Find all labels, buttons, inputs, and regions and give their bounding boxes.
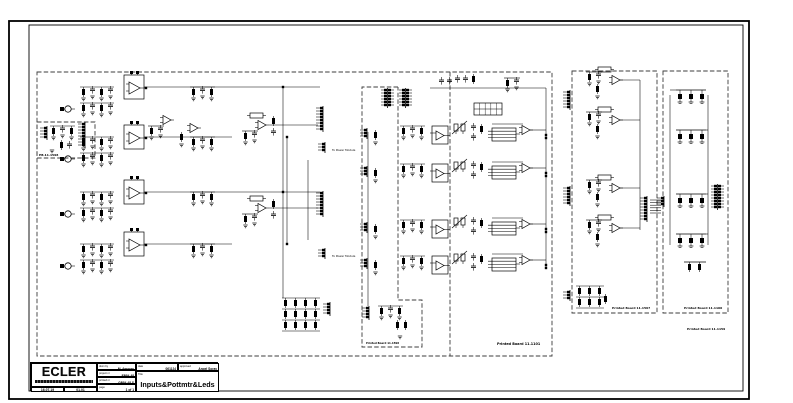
circuit-part (320, 119, 323, 121)
circuit-part (364, 223, 367, 225)
circuit-part (700, 134, 704, 139)
circuit-part (60, 157, 64, 161)
circuit-part (327, 309, 330, 311)
circuit-part (320, 107, 323, 109)
circuit-part (65, 106, 71, 112)
circuit-part (364, 167, 367, 169)
circuit-part (506, 80, 509, 86)
schematic-sheet: PB.11.1598 Printed Board 11.1101 Printed… (0, 0, 793, 403)
circuit-part (644, 197, 647, 199)
circuit-part (320, 195, 323, 197)
circuit-part (545, 228, 547, 230)
circuit-part (472, 76, 475, 82)
circuit-part (461, 218, 465, 225)
circuit-part (130, 71, 133, 74)
circuit-part (82, 132, 85, 134)
circuit-part (567, 291, 570, 293)
circuit-part (327, 303, 330, 305)
circuit-part (402, 101, 405, 103)
title-cell: Title Inputs&Pottmtr&Leds (136, 371, 219, 392)
circuit-part (689, 134, 693, 139)
circuit-part (100, 105, 103, 111)
circuit-part (596, 234, 599, 240)
circuit-part (304, 311, 307, 317)
circuit-part (406, 95, 409, 97)
circuit-part (320, 204, 323, 206)
circuit-part (384, 101, 387, 103)
circuit-part (718, 194, 721, 196)
circuit-part (364, 173, 367, 175)
circuit-part (545, 267, 547, 269)
circuit-part (190, 124, 198, 133)
sheet-title: Inputs&Pottmtr&Leds (137, 380, 218, 389)
circuit-part (644, 215, 647, 217)
circuit-part (322, 146, 325, 148)
circuit-part (327, 306, 330, 308)
circuit-part (304, 300, 307, 306)
circuit-part (124, 180, 144, 204)
circuit-part (661, 203, 664, 205)
circuit-part (44, 130, 47, 132)
circuit-part (612, 184, 620, 193)
board-label-main: Printed Board 11.1101 (497, 342, 541, 346)
circuit-part (320, 128, 323, 130)
circuit-part (596, 126, 599, 132)
circuit-part (192, 246, 195, 252)
circuit-part (284, 322, 287, 328)
circuit-part (644, 203, 647, 205)
circuit-part (454, 254, 458, 261)
circuit-part (432, 164, 448, 182)
circuit-part (545, 231, 547, 233)
circuit-part (678, 198, 682, 203)
circuit-part (406, 89, 409, 91)
circuit-part (282, 191, 284, 193)
circuit-part (388, 104, 391, 106)
circuit-part (461, 124, 465, 131)
circuit-part (320, 113, 323, 115)
circuit-part (454, 162, 458, 169)
printed-cell: printed nr GP84-48 S (97, 377, 136, 384)
circuit-part (364, 132, 367, 134)
circuit-part (522, 256, 530, 265)
circuit-part (644, 218, 647, 220)
circuit-part (180, 134, 183, 140)
circuit-part (320, 201, 323, 203)
circuit-part (314, 300, 317, 306)
circuit-part (596, 194, 599, 200)
circuit-part (82, 144, 85, 146)
circuit-part (567, 187, 570, 189)
circuit-part (436, 261, 444, 270)
circuit-part (402, 98, 405, 100)
circuit-part (718, 191, 721, 193)
circuit-part (567, 202, 570, 204)
circuit-part (598, 107, 611, 112)
circuit-part (714, 194, 717, 196)
circuit-part (44, 136, 47, 138)
circuit-part (82, 210, 85, 216)
circuit-part (567, 106, 570, 108)
circuit-part (145, 137, 147, 139)
circuit-part (124, 125, 144, 149)
wire-label-to-power-1: To Power Module (331, 148, 356, 152)
circuit-part (388, 92, 391, 94)
circuit-part (129, 82, 140, 94)
circuit-part (612, 224, 620, 233)
circuit-part (420, 258, 423, 264)
circuit-part (130, 228, 133, 231)
circuit-part (406, 104, 409, 106)
circuit-part (461, 162, 465, 169)
circuit-part (100, 262, 103, 268)
title-block: ECLER 16.07.19 01.01 drwn by M. Amores p… (30, 362, 218, 391)
circuit-part (714, 188, 717, 190)
circuit-part (644, 200, 647, 202)
circuit-part (364, 226, 367, 228)
circuit-part (210, 139, 213, 145)
circuit-part (661, 197, 664, 199)
circuit-part (60, 107, 64, 111)
circuit-part (567, 94, 570, 96)
circuit-part (100, 89, 103, 95)
circuit-part (272, 118, 275, 124)
circuit-part (567, 103, 570, 105)
circuit-part (82, 105, 85, 111)
circuit-part (567, 97, 570, 99)
circuit-part (522, 220, 530, 229)
circuit-part (644, 206, 647, 208)
circuit-part (364, 170, 367, 172)
circuit-part (82, 138, 85, 140)
rev-date-1-cell: 16.07.19 (31, 387, 64, 392)
circuit-part (364, 262, 367, 264)
circuit-part (364, 129, 367, 131)
circuit-part (604, 296, 607, 302)
circuit-part (432, 126, 448, 144)
circuit-part (402, 258, 405, 264)
circuit-part (82, 262, 85, 268)
circuit-part (320, 110, 323, 112)
circuit-part (145, 192, 147, 194)
circuit-part (364, 259, 367, 261)
circuit-part (718, 185, 721, 187)
circuit-part (44, 133, 47, 135)
circuit-part (700, 94, 704, 99)
circuit-part (718, 206, 721, 208)
circuit-part (136, 71, 139, 74)
circuit-part (612, 76, 620, 85)
ecler-logo: ECLER (32, 366, 96, 380)
circuit-part (60, 212, 64, 216)
circuit-part (210, 246, 213, 252)
circuit-part (82, 129, 85, 131)
circuit-part (320, 116, 323, 118)
circuit-part (718, 197, 721, 199)
circuit-part (136, 176, 139, 179)
circuit-part (192, 194, 195, 200)
circuit-part (150, 128, 153, 134)
circuit-part (380, 308, 383, 314)
circuit-part (100, 246, 103, 252)
board-label-pot: Printed Board 11.1597 (612, 306, 650, 310)
circuit-part (545, 172, 547, 174)
circuit-part (714, 206, 717, 208)
circuit-part (384, 98, 387, 100)
circuit-part (322, 143, 325, 145)
date-cell: date 061124 (136, 363, 178, 371)
circuit-part (567, 297, 570, 299)
circuit-part (366, 310, 369, 312)
circuit-part (282, 86, 284, 88)
circuit-part (82, 126, 85, 128)
circuit-part (65, 263, 71, 269)
page-cell: page 1 of 1 (97, 384, 136, 392)
circuit-part (714, 191, 717, 193)
circuit-part (402, 92, 405, 94)
circuit-part (364, 229, 367, 231)
circuit-part (52, 128, 55, 134)
circuit-part (596, 86, 599, 92)
circuit-part (322, 255, 325, 257)
board-label-led-alt: Printed Board 11.1159 (687, 327, 725, 331)
circuit-part (567, 190, 570, 192)
circuit-part (294, 300, 297, 306)
circuit-part (718, 200, 721, 202)
circuit-part (688, 264, 691, 270)
circuit-part (284, 311, 287, 317)
circuit-part (244, 133, 247, 139)
logo-address-strip (35, 380, 93, 383)
circuit-part (100, 139, 103, 145)
circuit-part (374, 226, 377, 232)
circuit-part (388, 89, 391, 91)
circuit-part (545, 264, 547, 266)
circuit-part (374, 170, 377, 176)
board-label-input-sub: PB.11.1598 (39, 153, 58, 157)
circuit-part (388, 101, 391, 103)
circuit-part (364, 265, 367, 267)
circuit-part (598, 299, 601, 305)
circuit-part (588, 182, 591, 188)
circuit-part (366, 316, 369, 318)
circuit-part (136, 228, 139, 231)
circuit-part (145, 244, 147, 246)
circuit-part (480, 220, 483, 226)
circuit-part (588, 299, 591, 305)
circuit-part (714, 203, 717, 205)
circuit-part (718, 188, 721, 190)
circuit-part (588, 74, 591, 80)
circuit-part (250, 196, 263, 201)
circuit-part (398, 308, 401, 314)
circuit-part (286, 136, 288, 138)
circuit-part (364, 135, 367, 137)
circuit-part (304, 322, 307, 328)
circuit-part (322, 249, 325, 251)
circuit-part (320, 207, 323, 209)
circuit-part (578, 299, 581, 305)
circuit-part (678, 134, 682, 139)
circuit-part (644, 212, 647, 214)
page-value: 1 of 1 (98, 389, 135, 392)
circuit-part (82, 246, 85, 252)
circuit-part (480, 126, 483, 132)
circuit-part (320, 125, 323, 127)
circuit-part (588, 222, 591, 228)
circuit-part (272, 201, 275, 207)
circuit-part (436, 169, 444, 178)
circuit-part (320, 213, 323, 215)
board-label-mid-sub: Printed Board 11.1598 (366, 341, 399, 345)
circuit-part (388, 98, 391, 100)
circuit-part (70, 128, 73, 134)
circuit-part (396, 322, 399, 328)
circuit-part (402, 104, 405, 106)
board-outline-pot (572, 71, 657, 313)
circuit-part (60, 264, 64, 268)
circuit-part (210, 89, 213, 95)
circuit-part (320, 210, 323, 212)
circuit-part (82, 141, 85, 143)
circuit-part (420, 166, 423, 172)
circuit-part (598, 215, 611, 220)
circuit-part (420, 222, 423, 228)
circuit-part (402, 95, 405, 97)
circuit-part (258, 204, 266, 213)
circuit-part (82, 194, 85, 200)
circuit-part (65, 156, 71, 162)
circuit-part (588, 288, 591, 294)
circuit-part (320, 198, 323, 200)
rev-date-2-cell: 01.01 (64, 387, 97, 392)
circuit-part (60, 142, 63, 148)
circuit-part (404, 322, 407, 328)
schematic-labels: PB.11.1598 Printed Board 11.1101 Printed… (39, 148, 725, 346)
circuit-part (320, 122, 323, 124)
circuit-part (545, 175, 547, 177)
circuit-part (129, 187, 140, 199)
circuit-part (436, 131, 444, 140)
circuit-part (545, 137, 547, 139)
circuit-part (82, 89, 85, 95)
circuit-part (461, 254, 465, 261)
circuit-part (567, 100, 570, 102)
circuit-part (644, 209, 647, 211)
circuit-part (250, 113, 263, 118)
circuit-part (327, 312, 330, 314)
circuit-part (163, 116, 171, 125)
circuit-part (294, 311, 297, 317)
circuit-part (374, 132, 377, 138)
circuit-part (406, 98, 409, 100)
circuit-part (124, 75, 144, 99)
circuit-part (700, 238, 704, 243)
circuit-part (432, 256, 448, 274)
rev-date-1: 16.07.19 (32, 388, 63, 392)
circuit-part (100, 210, 103, 216)
logo-cell: ECLER (31, 363, 97, 387)
circuit-part (124, 232, 144, 256)
circuit-part (406, 101, 409, 103)
title-label: Title (137, 372, 218, 376)
circuit-part (689, 238, 693, 243)
circuit-part (384, 104, 387, 106)
circuit-part (598, 175, 611, 180)
circuit-part (294, 322, 297, 328)
circuit-part (522, 126, 530, 135)
circuit-part (100, 155, 103, 161)
circuit-part (718, 203, 721, 205)
circuit-part (366, 307, 369, 309)
circuit-part (714, 197, 717, 199)
wire-label-to-power-2: To Power Module (331, 254, 356, 258)
circuit-part (322, 149, 325, 151)
circuit-part (192, 139, 195, 145)
approved-cell: approved Angel Soray (178, 363, 219, 371)
circuit-part (454, 124, 458, 131)
circuit-part (567, 199, 570, 201)
circuit-part (661, 200, 664, 202)
circuit-part (44, 127, 47, 129)
circuit-part (689, 198, 693, 203)
circuit-part (314, 311, 317, 317)
circuit-part (714, 200, 717, 202)
circuit-part (567, 294, 570, 296)
circuit-part (284, 300, 287, 306)
circuit-part (129, 132, 140, 144)
circuit-part (406, 92, 409, 94)
circuit-part (130, 121, 133, 124)
circuit-part (314, 322, 317, 328)
circuit-part (366, 313, 369, 315)
circuit-part (432, 220, 448, 238)
circuit-part (567, 193, 570, 195)
circuit-part (136, 121, 139, 124)
circuit-part (384, 92, 387, 94)
circuit-part (714, 185, 717, 187)
circuit-part (374, 262, 377, 268)
circuit-part (689, 94, 693, 99)
circuit-part (678, 238, 682, 243)
board-label-led: Printed Board 11.1100 (684, 306, 722, 310)
circuit-part (480, 256, 483, 262)
circuit-part (388, 95, 391, 97)
circuit-part (82, 155, 85, 161)
circuit-part (244, 216, 247, 222)
circuit-part (436, 225, 444, 234)
circuit-part (82, 135, 85, 137)
circuit-part (454, 218, 458, 225)
circuit-part (402, 222, 405, 228)
circuit-part (65, 211, 71, 217)
circuit-part (145, 87, 147, 89)
circuit-part (322, 252, 325, 254)
circuit-part (545, 134, 547, 136)
circuit-part (286, 243, 288, 245)
circuit-part (402, 128, 405, 134)
circuit-part (82, 123, 85, 125)
circuit-part (100, 194, 103, 200)
circuit-part (678, 94, 682, 99)
circuit-part (567, 91, 570, 93)
circuit-part (522, 164, 530, 173)
schematic-canvas: PB.11.1598 Printed Board 11.1101 Printed… (0, 0, 793, 403)
component-layer (44, 67, 721, 328)
rev-date-2: 01.01 (65, 388, 96, 392)
circuit-part (698, 264, 701, 270)
circuit-part (130, 176, 133, 179)
